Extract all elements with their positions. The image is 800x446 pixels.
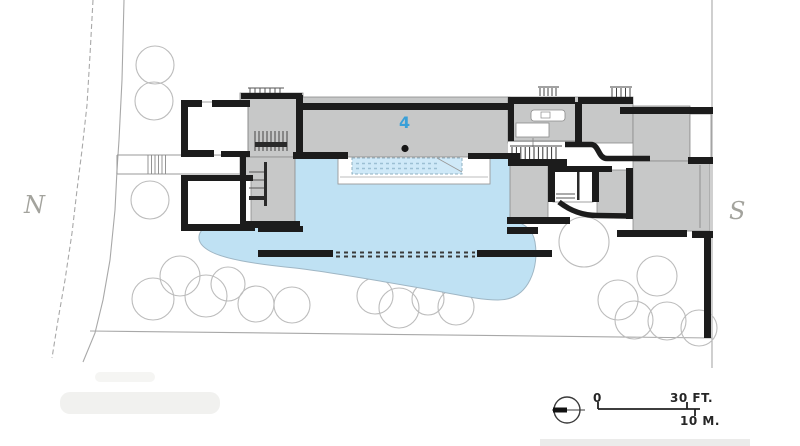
wall-segment [258, 226, 303, 232]
wall-segment [258, 250, 333, 257]
level-dot [401, 145, 408, 152]
tree-circle [132, 278, 174, 320]
east-bar [633, 106, 690, 161]
southeast-block [633, 161, 710, 231]
room-northwest [183, 102, 248, 155]
tree-circle [598, 280, 638, 320]
scale-zero-label: 0 [593, 391, 602, 405]
road-edge-outer [52, 0, 93, 358]
wall-segment [508, 97, 575, 104]
tree-circle [131, 181, 169, 219]
scale-meters-label: 10 M. [680, 414, 720, 428]
compass-south-label: S [729, 197, 745, 225]
wall-segment [181, 224, 255, 231]
wall-segment [578, 97, 633, 104]
lap-pool [352, 158, 462, 174]
road-edge-inner [83, 0, 124, 362]
wall-segment [181, 176, 188, 231]
wall-segment [477, 250, 552, 257]
wall-segment [620, 107, 713, 114]
tree-circle [136, 46, 174, 84]
wall-segment [296, 103, 512, 110]
tree-circle [160, 256, 200, 296]
entry-walkway [117, 155, 242, 174]
tree-circle [357, 278, 393, 314]
wall-segment [548, 170, 555, 202]
kitchen-counter [516, 123, 549, 137]
wall-segment [181, 100, 188, 157]
wall-segment [575, 102, 582, 143]
east-porch [690, 114, 711, 160]
building-number-label: 4 [399, 113, 410, 132]
entry-stair-hatch [148, 155, 166, 174]
wall-segment [293, 152, 348, 159]
tree-circle [559, 217, 609, 267]
wall-segment [507, 227, 538, 234]
wall-segment [548, 166, 612, 172]
wall-segment [508, 159, 567, 166]
wall-segment [241, 93, 302, 99]
wall-segment [507, 217, 570, 224]
scale-feet-label: 30 FT. [670, 391, 713, 405]
pool-deck [338, 156, 490, 184]
wall-segment [617, 230, 687, 237]
skylight-ticks-west [538, 87, 559, 96]
compass-north-label: N [24, 191, 45, 219]
wall-segment [508, 97, 514, 141]
wall-segment [181, 175, 253, 181]
wall-segment [704, 233, 711, 338]
north-indicator [552, 397, 585, 423]
site-plan-page: N S 4 0 30 FT. 10 M. [0, 0, 800, 446]
wall-segment [688, 157, 713, 164]
tree-circle [185, 275, 227, 317]
wall-segment [592, 168, 599, 202]
wall-segment [181, 150, 214, 157]
tree-circle [135, 82, 173, 120]
wall-segment [626, 168, 633, 219]
tree-circle [238, 286, 274, 322]
wall-segment [212, 100, 250, 107]
room-lower-stair [553, 171, 593, 202]
skylight-ticks-east [610, 87, 632, 97]
site-plan-drawing [0, 0, 800, 446]
wall-segment [240, 157, 246, 228]
tower-roof-ticks [248, 88, 284, 93]
terrace-block [510, 164, 548, 218]
wall-segment [221, 151, 250, 157]
tree-circle [274, 287, 310, 323]
wall-segment [468, 153, 520, 159]
tree-circle [637, 256, 677, 296]
tree-circle [648, 302, 686, 340]
